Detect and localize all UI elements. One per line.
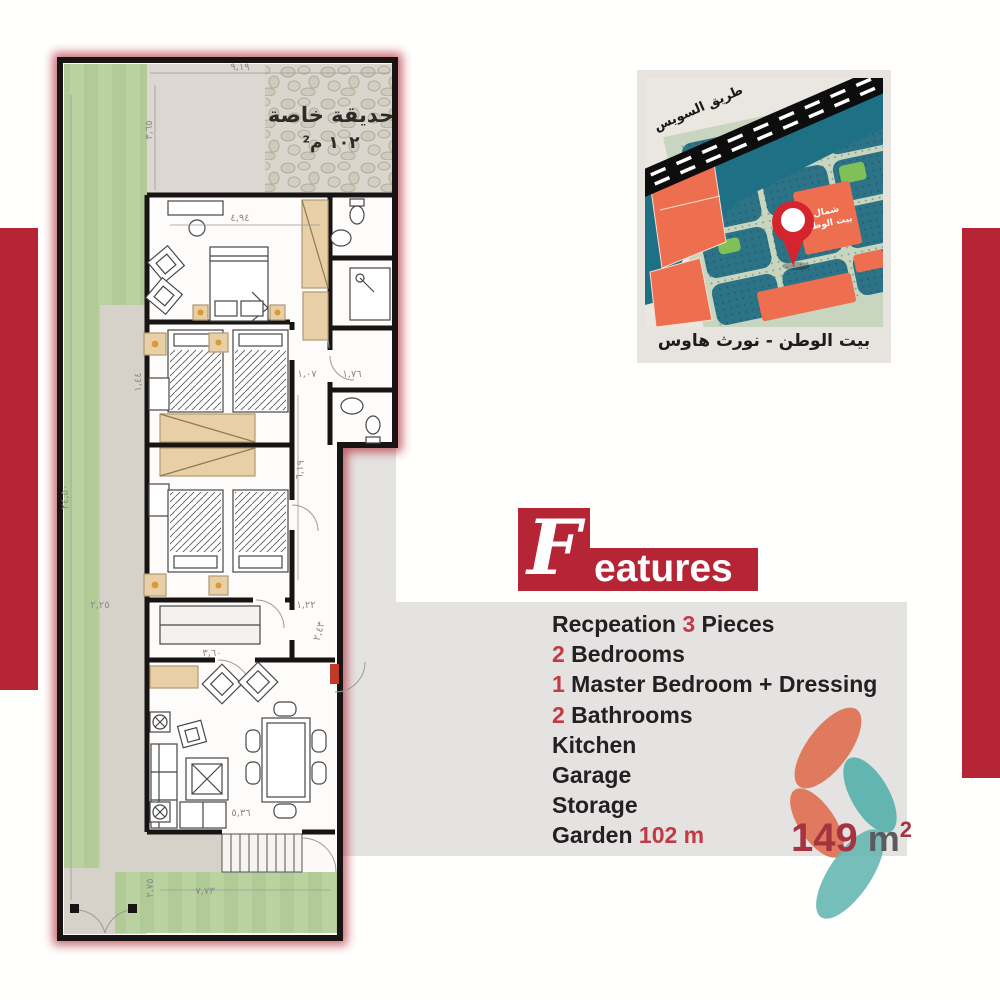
side-garden-wide [64, 64, 147, 305]
entry-paving [100, 830, 222, 872]
feature-item: Kitchen [552, 730, 912, 760]
features-title-initial: F [527, 503, 581, 592]
svg-text:١,٧٦: ١,٧٦ [342, 369, 361, 380]
toilet [350, 206, 364, 224]
side-garden-strip [64, 305, 100, 934]
entry-door-red [330, 664, 339, 684]
area-unit: m [858, 818, 900, 859]
toilet-2 [366, 416, 380, 434]
features-title-box: eatures [590, 548, 758, 591]
desk [149, 484, 169, 516]
stool [189, 220, 205, 236]
feature-item: 1 Master Bedroom + Dressing [552, 669, 912, 699]
flyer-canvas: ٩,١٩ ٣,٦٥ ٤,٩٤ ٢٤,٥٠ ٢,٢٥ ١,٤٤ ٦,١٩ ١,٠٧… [0, 0, 1000, 1000]
feature-item: Garage [552, 760, 912, 790]
total-area-label: 149 m2 [791, 816, 912, 861]
svg-text:١,٠٧: ١,٠٧ [297, 369, 317, 380]
svg-text:٥,٣٦: ٥,٣٦ [231, 808, 250, 819]
feature-item: 2 Bedrooms [552, 639, 912, 669]
storage-room [160, 606, 260, 644]
map-caption: بيت الوطن - نورث هاوس [641, 331, 887, 357]
svg-text:٣,٦٠: ٣,٦٠ [202, 648, 221, 659]
svg-text:٤,٩٤: ٤,٩٤ [230, 213, 249, 224]
svg-text:١,٢٢: ١,٢٢ [296, 600, 315, 611]
closet [303, 292, 328, 340]
console [150, 666, 198, 688]
svg-text:٣,٦٥: ٣,٦٥ [144, 120, 155, 139]
features-title-initial-box: F [518, 508, 590, 591]
feature-item: 2 Bathrooms [552, 700, 912, 730]
desk [149, 378, 169, 410]
terrace-paving [147, 64, 265, 195]
location-map: شمال بيت الوطن طريق السويس [571, 14, 1000, 377]
features-list: Recpeation 3 Pieces 2 Bedrooms 1 Master … [552, 609, 912, 851]
stairs [222, 834, 302, 872]
svg-text:٧,٧٣: ٧,٧٣ [195, 886, 215, 897]
floor-fixture [150, 712, 170, 732]
toilet-tank [350, 199, 364, 206]
features-title-rest: eatures [594, 547, 733, 590]
svg-text:١٠٢ م²: ١٠٢ م² [303, 133, 361, 153]
area-exponent: 2 [900, 817, 912, 842]
svg-text:٢٤,٥٠: ٢٤,٥٠ [60, 485, 71, 510]
dresser [168, 201, 223, 215]
svg-text:حديقة خاصة: حديقة خاصة [268, 103, 394, 127]
svg-text:٢,٢٥: ٢,٢٥ [90, 600, 109, 611]
svg-text:١,٤٤: ١,٤٤ [133, 372, 144, 391]
svg-text:٢,٧٥: ٢,٧٥ [145, 878, 156, 897]
area-value: 149 [791, 816, 858, 860]
svg-text:٦,١٩: ٦,١٩ [294, 460, 307, 480]
floor-plan: ٩,١٩ ٣,٦٥ ٤,٩٤ ٢٤,٥٠ ٢,٢٥ ١,٤٤ ٦,١٩ ١,٠٧… [60, 60, 395, 938]
coffee-table [186, 758, 228, 800]
sink-2 [341, 398, 363, 414]
feature-item: Recpeation 3 Pieces [552, 609, 912, 639]
toilet-tank-2 [366, 437, 380, 443]
gate-paving [64, 868, 115, 934]
private-garden-stone [265, 64, 393, 195]
sink [331, 230, 351, 246]
floor-fixture [150, 802, 170, 822]
svg-text:٩,١٩: ٩,١٩ [230, 62, 249, 73]
